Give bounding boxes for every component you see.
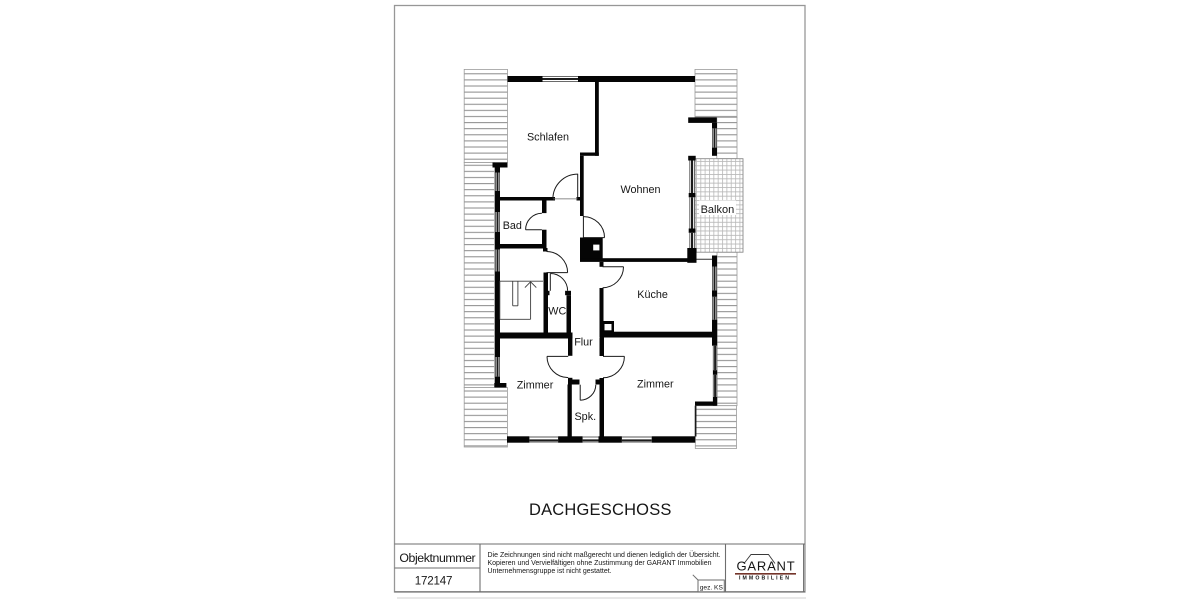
svg-text:Flur: Flur — [574, 337, 593, 349]
svg-text:Schlafen: Schlafen — [527, 132, 569, 144]
svg-text:Bad: Bad — [503, 220, 522, 232]
svg-text:172147: 172147 — [415, 575, 453, 588]
svg-text:IMMOBILIEN: IMMOBILIEN — [739, 576, 791, 582]
svg-text:Zimmer: Zimmer — [637, 379, 674, 391]
svg-text:Kopieren und Vervielfältigen o: Kopieren und Vervielfältigen ohne Zustim… — [488, 560, 712, 567]
svg-text:Spk.: Spk. — [574, 411, 596, 423]
svg-text:Küche: Küche — [637, 289, 668, 301]
svg-text:Zimmer: Zimmer — [517, 379, 554, 391]
svg-text:Die Zeichnungen sind nicht maß: Die Zeichnungen sind nicht maßgerecht un… — [488, 551, 721, 559]
svg-text:DACHGESCHOSS: DACHGESCHOSS — [529, 501, 672, 519]
svg-text:GARANT: GARANT — [737, 559, 796, 574]
svg-text:Wohnen: Wohnen — [620, 184, 660, 196]
svg-text:Unternehmensgruppe ist nicht g: Unternehmensgruppe ist nicht gestattet. — [488, 568, 612, 575]
svg-text:Objektnummer: Objektnummer — [399, 551, 475, 565]
svg-text:WC: WC — [548, 305, 566, 317]
svg-text:gez. KS: gez. KS — [700, 584, 724, 591]
svg-text:Balkon: Balkon — [701, 204, 735, 216]
